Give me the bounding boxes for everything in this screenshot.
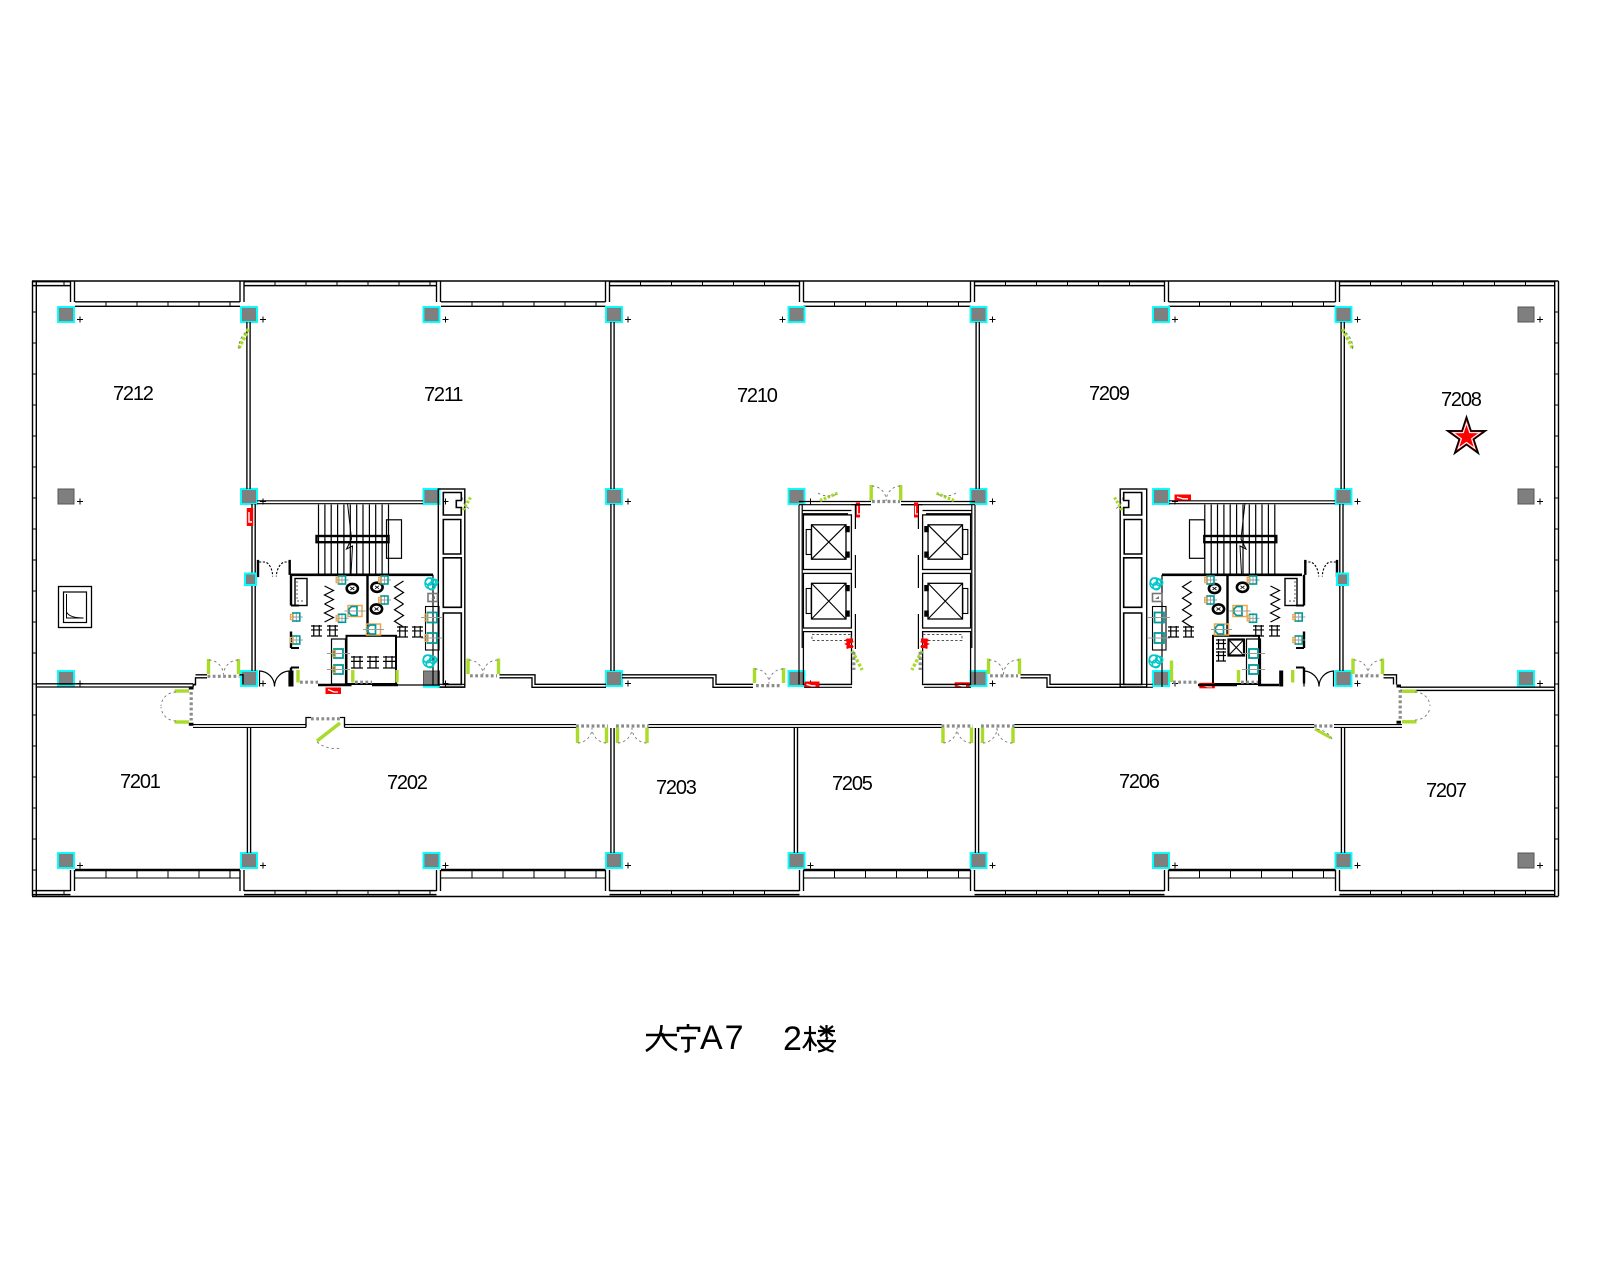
svg-text:7205: 7205	[832, 773, 873, 795]
svg-text:7207: 7207	[1426, 780, 1467, 802]
svg-text:7202: 7202	[387, 772, 428, 794]
svg-text:7203: 7203	[656, 777, 697, 799]
svg-text:7210: 7210	[737, 385, 778, 407]
svg-text:7206: 7206	[1119, 771, 1160, 793]
svg-text:7201: 7201	[120, 771, 161, 793]
svg-text:7208: 7208	[1441, 389, 1482, 411]
svg-text:7209: 7209	[1089, 383, 1130, 405]
svg-text:7211: 7211	[424, 384, 463, 406]
svg-text:7212: 7212	[113, 383, 154, 405]
svg-text:A7: A7	[700, 1019, 746, 1057]
svg-text:2: 2	[783, 1020, 802, 1058]
